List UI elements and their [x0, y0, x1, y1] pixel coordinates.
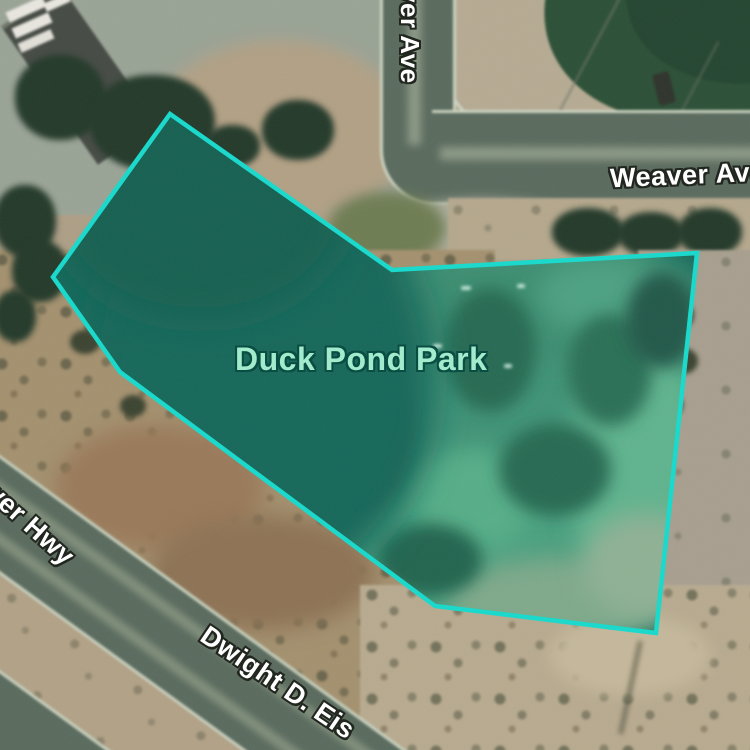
park-name-label[interactable]: Duck Pond Park: [235, 341, 487, 378]
satellite-map-canvas[interactable]: Duck Pond Park ver Ave Weaver Ave ower H…: [0, 0, 750, 750]
street-label-weaver-ave: Weaver Ave: [609, 157, 750, 195]
street-label-weaver-ave-vertical: ver Ave: [394, 0, 425, 84]
